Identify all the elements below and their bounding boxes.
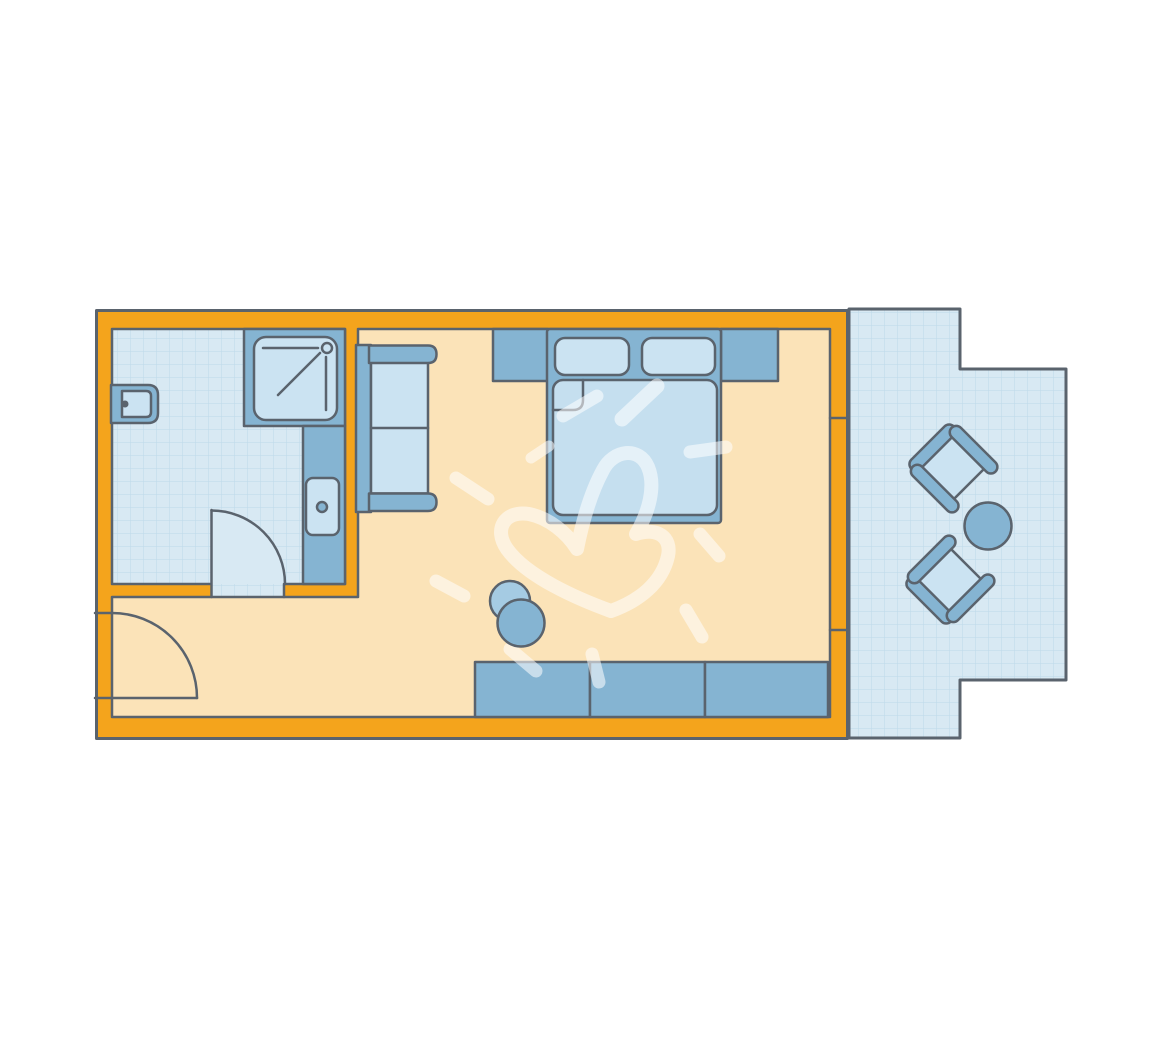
sofa-backrest <box>356 345 371 512</box>
pillow-right <box>642 338 715 375</box>
shower-head <box>322 343 332 353</box>
toilet-flush-dot <box>122 401 129 408</box>
pillow-left <box>555 338 629 375</box>
shower <box>244 329 345 426</box>
sofa-armrest-top <box>369 346 437 364</box>
watermark-ray <box>690 447 726 452</box>
sofa <box>356 345 437 512</box>
stool-seat <box>498 600 545 647</box>
balcony-table <box>965 503 1012 550</box>
nightstand-right <box>721 329 778 381</box>
sideboard-section-2 <box>590 662 705 717</box>
nightstand-left <box>493 329 548 381</box>
bathroom-door-threshold <box>212 582 283 598</box>
balcony-floor <box>849 309 1066 738</box>
sink-drain <box>317 502 327 512</box>
sink <box>303 426 345 584</box>
watermark-ray <box>592 654 599 682</box>
floor-plan-canvas <box>0 0 1161 1057</box>
sofa-armrest-bottom <box>369 494 437 512</box>
balcony <box>849 309 1066 738</box>
hotel-room-floor-plan <box>0 0 1161 1057</box>
sideboard-section-3 <box>705 662 828 717</box>
toilet <box>111 385 158 423</box>
